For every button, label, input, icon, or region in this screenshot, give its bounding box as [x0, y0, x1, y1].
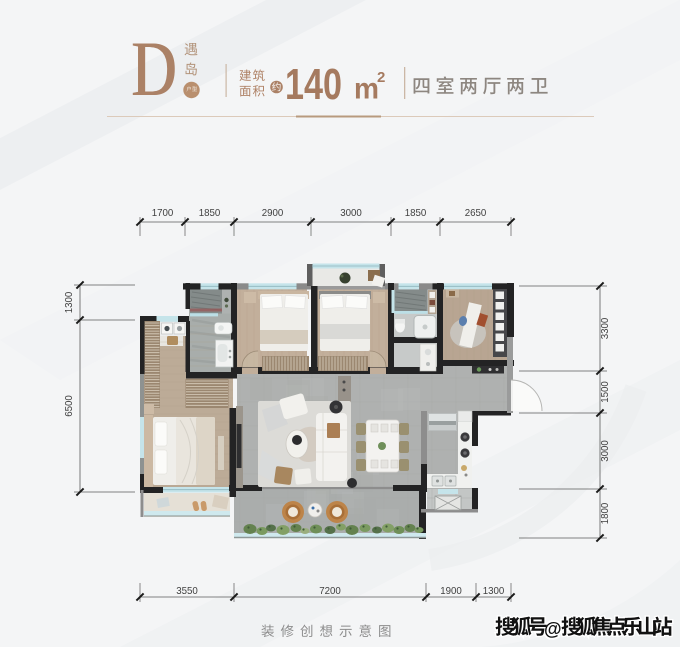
- svg-text:1500: 1500: [599, 381, 611, 403]
- svg-text:2650: 2650: [465, 207, 487, 219]
- svg-text:1850: 1850: [405, 207, 427, 219]
- svg-text:1300: 1300: [483, 585, 505, 597]
- svg-text:@: @: [544, 619, 562, 639]
- svg-text:3550: 3550: [176, 585, 198, 597]
- svg-text:m: m: [354, 73, 379, 106]
- svg-text:2900: 2900: [262, 207, 284, 219]
- svg-text:3000: 3000: [599, 440, 611, 462]
- svg-text:3000: 3000: [340, 207, 362, 219]
- svg-text:140: 140: [285, 60, 342, 109]
- svg-text:1900: 1900: [440, 585, 462, 597]
- svg-text:3300: 3300: [599, 318, 611, 340]
- svg-text:1850: 1850: [199, 207, 221, 219]
- svg-text:7200: 7200: [319, 585, 341, 597]
- svg-text:1800: 1800: [599, 503, 611, 525]
- svg-text:6500: 6500: [63, 395, 75, 417]
- svg-text:1300: 1300: [63, 292, 75, 314]
- svg-text:1700: 1700: [152, 207, 174, 219]
- svg-text:D: D: [132, 25, 177, 112]
- svg-text:2: 2: [377, 69, 385, 86]
